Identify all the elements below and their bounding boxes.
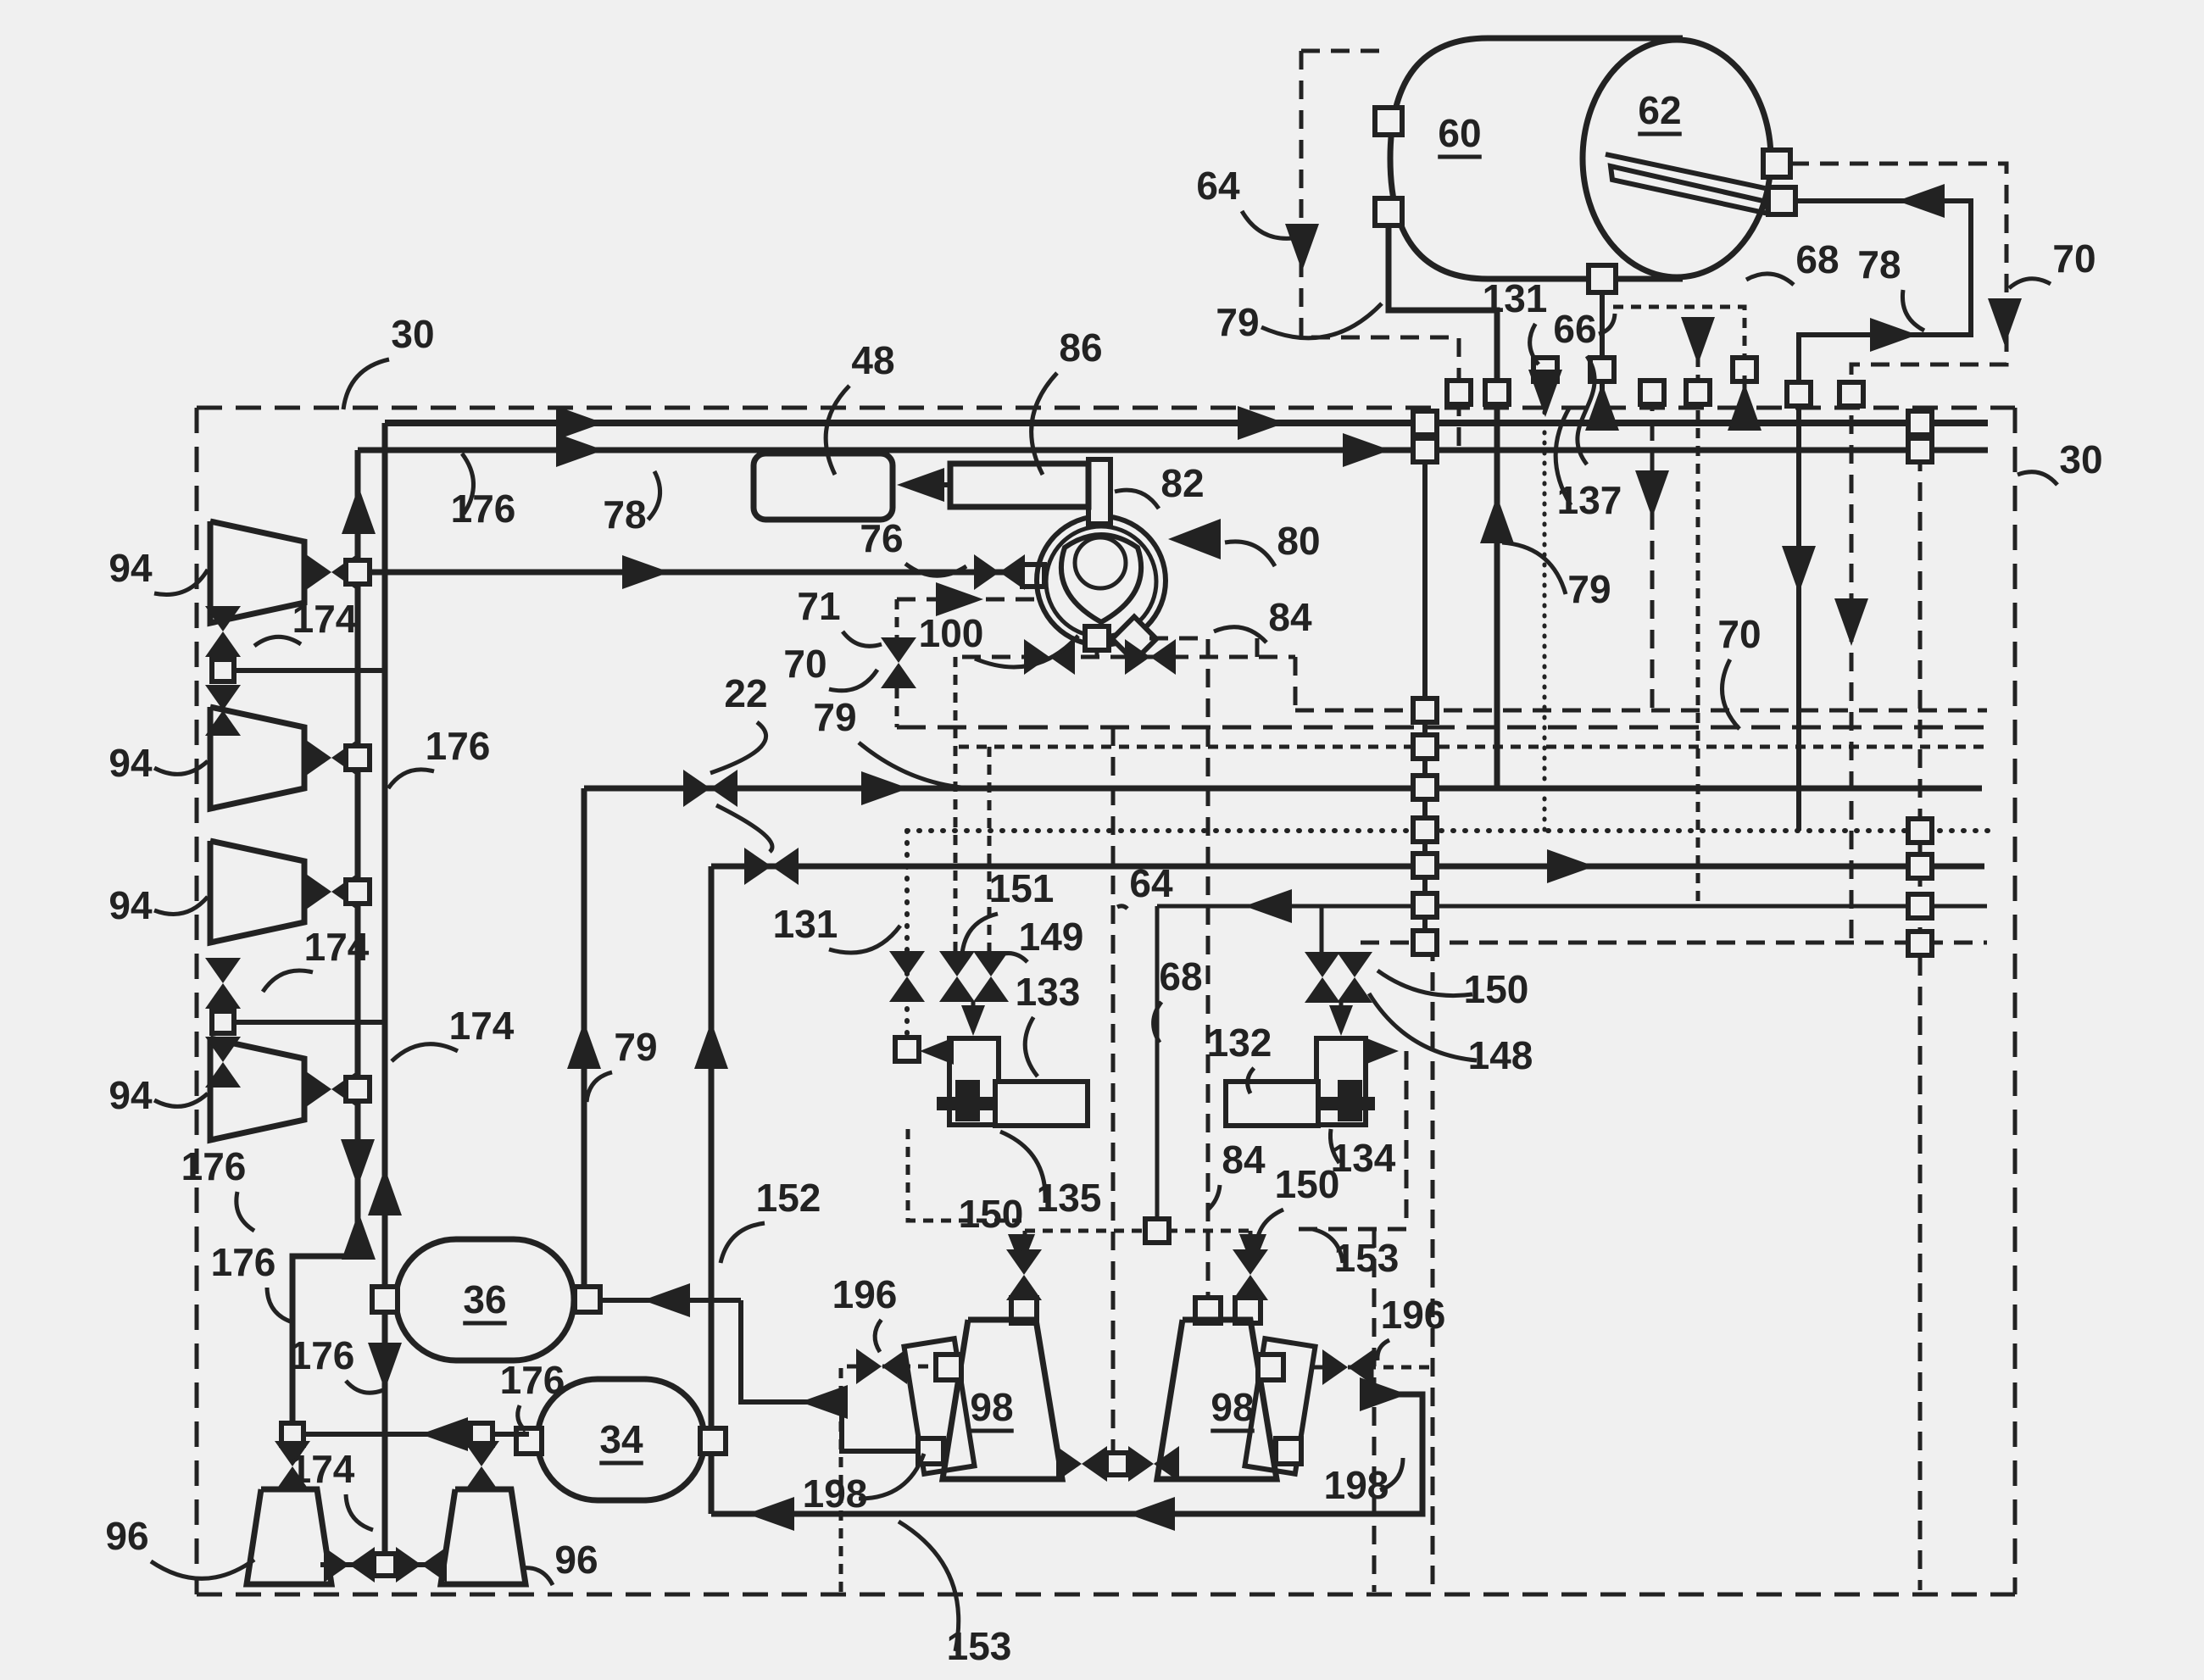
svg-text:78: 78 (1857, 242, 1901, 286)
svg-text:94: 94 (109, 1073, 153, 1117)
svg-text:100: 100 (919, 611, 984, 655)
svg-text:98: 98 (970, 1385, 1013, 1429)
svg-text:68: 68 (1795, 237, 1839, 281)
svg-text:176: 176 (181, 1144, 247, 1188)
svg-text:174: 174 (292, 597, 358, 641)
svg-text:176: 176 (451, 487, 516, 531)
svg-text:64: 64 (1196, 164, 1240, 208)
svg-text:70: 70 (783, 642, 826, 686)
svg-text:68: 68 (1159, 954, 1202, 999)
svg-text:66: 66 (1553, 307, 1596, 351)
svg-text:30: 30 (391, 312, 434, 356)
svg-text:64: 64 (1129, 861, 1173, 905)
svg-text:94: 94 (109, 546, 153, 590)
svg-text:198: 198 (1324, 1463, 1389, 1507)
svg-text:94: 94 (109, 741, 153, 785)
svg-text:79: 79 (614, 1025, 657, 1069)
svg-text:148: 148 (1468, 1033, 1533, 1077)
svg-text:30: 30 (2059, 437, 2102, 481)
svg-text:48: 48 (851, 338, 894, 382)
svg-text:176: 176 (426, 724, 491, 768)
svg-text:36: 36 (463, 1277, 506, 1321)
svg-text:70: 70 (2052, 236, 2095, 281)
svg-text:71: 71 (797, 584, 840, 628)
svg-text:96: 96 (554, 1538, 598, 1582)
svg-text:96: 96 (105, 1514, 148, 1558)
svg-text:62: 62 (1638, 88, 1681, 132)
svg-text:86: 86 (1059, 325, 1102, 370)
svg-text:196: 196 (1381, 1293, 1446, 1337)
svg-text:198: 198 (803, 1471, 868, 1516)
svg-text:174: 174 (304, 925, 370, 969)
svg-text:133: 133 (1016, 970, 1081, 1014)
svg-text:149: 149 (1019, 915, 1084, 959)
svg-text:34: 34 (599, 1417, 643, 1461)
svg-text:78: 78 (603, 492, 646, 537)
svg-text:79: 79 (813, 695, 856, 739)
svg-text:132: 132 (1207, 1021, 1272, 1065)
svg-text:134: 134 (1331, 1136, 1396, 1180)
svg-text:84: 84 (1222, 1138, 1266, 1182)
svg-text:94: 94 (109, 883, 153, 927)
svg-text:60: 60 (1438, 111, 1481, 155)
svg-text:82: 82 (1160, 461, 1204, 505)
svg-text:131: 131 (1483, 276, 1548, 320)
svg-text:174: 174 (449, 1004, 515, 1048)
svg-text:196: 196 (832, 1272, 898, 1316)
svg-text:176: 176 (211, 1240, 276, 1284)
svg-text:22: 22 (724, 671, 767, 715)
svg-text:150: 150 (1275, 1162, 1340, 1206)
svg-text:176: 176 (500, 1358, 565, 1402)
svg-text:152: 152 (756, 1176, 821, 1220)
svg-text:80: 80 (1277, 519, 1320, 563)
svg-text:174: 174 (290, 1447, 355, 1491)
svg-text:150: 150 (1464, 967, 1529, 1011)
svg-text:84: 84 (1268, 595, 1312, 639)
svg-text:76: 76 (860, 516, 903, 560)
svg-text:176: 176 (290, 1333, 355, 1377)
svg-text:151: 151 (989, 866, 1055, 910)
svg-text:131: 131 (773, 902, 838, 946)
svg-text:79: 79 (1216, 300, 1259, 344)
svg-text:98: 98 (1211, 1385, 1254, 1429)
svg-text:79: 79 (1567, 567, 1611, 611)
svg-text:70: 70 (1717, 612, 1761, 656)
svg-text:150: 150 (959, 1192, 1024, 1236)
